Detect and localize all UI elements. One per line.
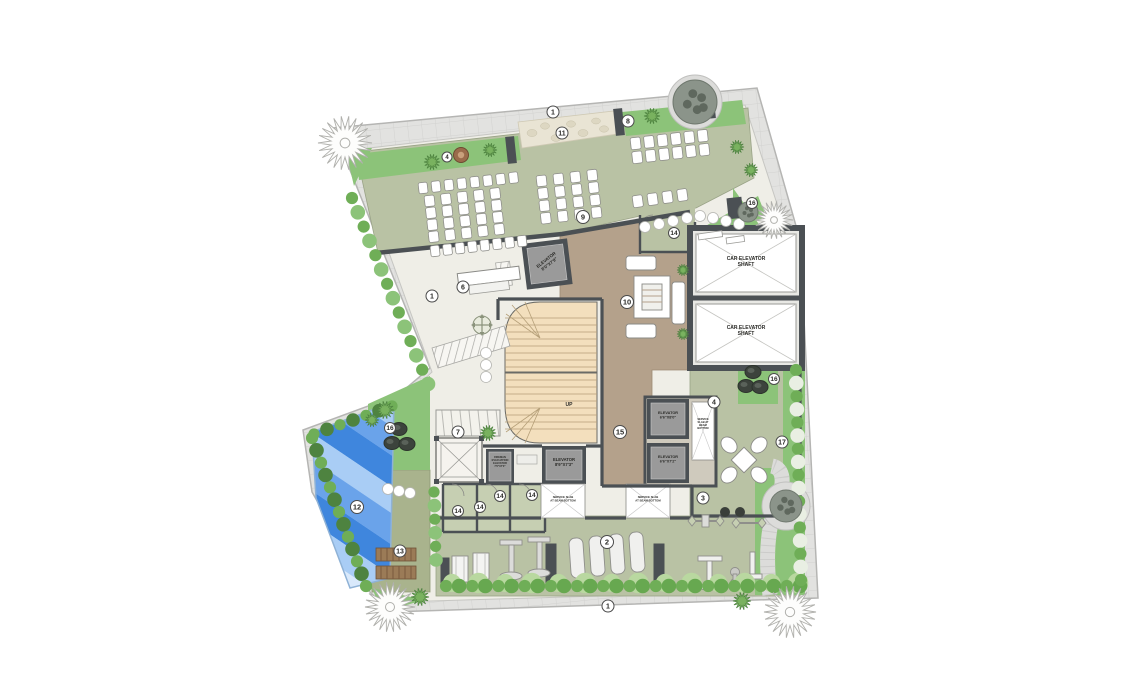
label-service-slab-1: SERVICE SLABAT BEAM BOTTOM [550,495,576,502]
chair [427,219,438,231]
hedge-bush [662,579,677,594]
plan-marker-number: 9 [581,212,585,221]
chair [670,132,681,145]
hedge-bush [688,579,703,594]
chair [590,194,601,206]
hedge-bush [792,469,804,481]
hedge-bush [324,481,336,493]
tree-canopy [770,490,802,522]
chair [424,195,435,207]
hedge-bush [345,542,360,557]
chair [457,178,467,190]
hedge-bush [794,548,806,560]
chair [662,190,674,203]
chair [573,196,584,208]
chair [657,134,668,147]
hedge-bush [792,443,804,455]
floor-plan-page: CAR ELEVATORSHAFTCAR ELEVATORSHAFTELEVAT… [0,0,1133,682]
label-stair-up: UP [566,402,574,408]
hedge-bush [440,580,452,592]
chair [425,207,436,219]
hedge-bush [351,555,363,567]
plan-marker-number: 14 [670,230,678,237]
chair [588,182,599,194]
chair [517,235,527,247]
car-elevator-shafts [690,228,802,368]
hedge-bush [430,541,441,552]
chair [492,238,502,250]
hedge-bush [351,205,366,220]
hedge-bush [416,364,428,376]
chair [553,173,564,185]
chair [505,236,515,248]
plan-marker-number: 2 [605,537,609,546]
plan-marker-number: 16 [386,425,394,432]
chair [672,146,683,159]
hedge-bush [346,413,360,427]
chair [418,182,428,194]
hedge-bush [793,533,808,548]
hedge-bush [421,377,436,392]
chair [467,241,477,253]
hedge-bush [397,320,412,335]
hedge-bush [428,486,439,497]
label-elevator-mid: ELEVATOR8'9"X7'3" [553,457,575,467]
hedge-bush [557,579,572,594]
hedge-bush [429,514,440,525]
hedge-bush [409,348,424,363]
stepping-stone [640,222,651,233]
plan-marker-number: 1 [430,293,434,300]
hedge-bush [635,579,650,594]
stepping-stone [708,213,719,224]
hedge-bush [381,278,393,290]
hedge-bush [728,580,740,592]
hedge-bush [791,455,806,470]
hedge-bush [571,580,583,592]
hedge-bush [609,579,624,594]
hedge-bush [790,364,802,376]
stepping-stone [668,216,679,227]
chair [540,212,551,224]
chair [444,229,455,241]
plan-marker-number: 1 [606,603,610,610]
hedge-bush [597,580,609,592]
chair [457,191,468,203]
plan-marker-number: 4 [712,399,716,406]
chair [477,225,488,237]
chair [658,148,669,161]
stepping-stone [481,360,492,371]
chair [685,145,696,158]
plan-marker-number: 16 [770,376,778,383]
chair [444,179,454,191]
tree-canopy [673,80,717,124]
chair [539,200,550,212]
lobby-bench [517,455,537,464]
chair [428,231,439,243]
chair [455,242,465,254]
hedge-bush [519,580,531,592]
hedge-bush [545,580,557,592]
hedge-bush [740,579,755,594]
hedge-bush [794,521,806,533]
chair [630,137,641,150]
plan-marker-number: 7 [456,429,460,436]
plan-marker-number: 11 [558,130,566,137]
chair [470,176,480,188]
hedge-bush [342,531,354,543]
hedge-bush [320,423,334,437]
chair [587,169,598,181]
chair [483,175,493,187]
chair [699,143,710,156]
chair [475,201,486,213]
plan-marker-number: 14 [476,504,484,511]
chair [556,198,567,210]
plan-marker-number: 14 [454,508,462,515]
chair [473,189,484,201]
hedge-bush [428,499,442,513]
hedge-bush [793,560,808,575]
chair [458,203,469,215]
chair [643,135,654,148]
plan-marker-number: 8 [626,118,630,125]
hedge-bush [452,579,467,594]
label-service-slab-3: SERVICESLAB ATBEAMBOTTOM [697,417,709,430]
chair [632,195,644,208]
hedge-bush [714,579,729,594]
hedge-bush [393,306,405,318]
chair [647,193,659,206]
chair [645,149,656,162]
staircase [505,302,597,443]
hedge-bush [327,492,342,507]
label-elevator-right-2: ELEVATOR6'6"X7'2" [658,455,678,463]
chair [492,211,503,223]
hedge-bush [429,553,443,567]
hedge-bush [791,416,803,428]
hedge-bush [466,580,478,592]
hedge-bush [374,262,389,277]
hedge-bush [309,443,324,458]
hedge-bush [624,580,636,592]
chair [442,205,453,217]
chair [537,187,548,199]
hedge-bush [791,390,803,402]
stepping-stone [654,219,665,230]
fire-pit [454,148,469,163]
chair [495,173,505,185]
stepping-stone [695,211,706,222]
stepping-stone [405,488,416,499]
chair [684,131,695,144]
plan-marker-number: 6 [461,284,465,291]
hedge-bush [358,221,370,233]
chair [431,181,441,193]
hedge-bush [362,234,377,249]
chair [440,193,451,205]
chair [480,239,490,251]
hedge-bush [755,580,767,592]
stepping-stone [383,484,394,495]
plan-marker-number: 10 [623,297,631,306]
chair [591,206,602,218]
plan-marker-number: 16 [748,200,756,207]
chair [554,185,565,197]
plan-marker-number: 15 [616,427,624,436]
hedge-bush [336,517,351,532]
plan-marker-number: 14 [528,492,536,499]
hedge-bush [676,580,688,592]
stepping-stone [682,213,693,224]
chair [490,187,501,199]
stepping-stone [721,216,732,227]
chair [476,213,487,225]
hedge-bush [531,579,546,594]
hedge-bush [478,579,493,594]
chair [494,223,505,235]
hedge-bush [308,428,319,439]
hedge-bush [318,468,333,483]
hedge-bush [795,574,807,586]
hedge-bush [354,566,369,581]
hedge-bush [650,580,662,592]
stepping-stone [481,372,492,383]
hedge-bush [583,579,598,594]
chair [536,175,547,187]
hedge-bush [790,402,805,417]
chair [677,188,689,201]
chair [508,172,518,184]
chair [442,244,452,256]
hedge-bush [315,457,327,469]
hedge-bush [702,580,714,592]
label-elevator-right-1: ELEVATOR6'6"X8'0" [658,411,678,419]
plan-marker-number: 3 [701,495,705,502]
label-service-slab-2: SERVICE SLABAT BEAM BOTTOM [635,495,661,502]
hedge-bush [333,506,345,518]
hedge-bush [404,335,416,347]
chair [460,215,471,227]
stepping-stone [394,486,405,497]
hedge-bush [428,526,442,540]
chair [557,210,568,222]
hedge-bush [504,579,519,594]
plan-marker-number: 17 [778,439,786,446]
plan-marker-number: 13 [396,548,404,555]
stepping-stone [481,348,492,359]
plan-marker-number: 1 [551,109,555,116]
plan-marker-number: 12 [353,502,361,511]
plan-marker-number: 14 [496,493,504,500]
chair [632,151,643,164]
chair [461,227,472,239]
floor-plan: CAR ELEVATORSHAFTCAR ELEVATORSHAFTELEVAT… [0,0,1133,682]
chair [697,129,708,142]
hedge-bush [334,419,345,430]
chair [571,183,582,195]
hedge-bush [790,428,805,443]
elevator-right-boxes [645,397,716,486]
hedge-bush [789,376,804,391]
chair [443,217,454,229]
chair [430,245,440,257]
hedge-bush [369,249,381,261]
hedge-bush [360,580,372,592]
hedge-bush [767,579,782,594]
hedge-bush [492,580,504,592]
chair [491,199,502,211]
hedge-bush [386,291,401,306]
chair [570,171,581,183]
hedge-bush [346,192,358,204]
